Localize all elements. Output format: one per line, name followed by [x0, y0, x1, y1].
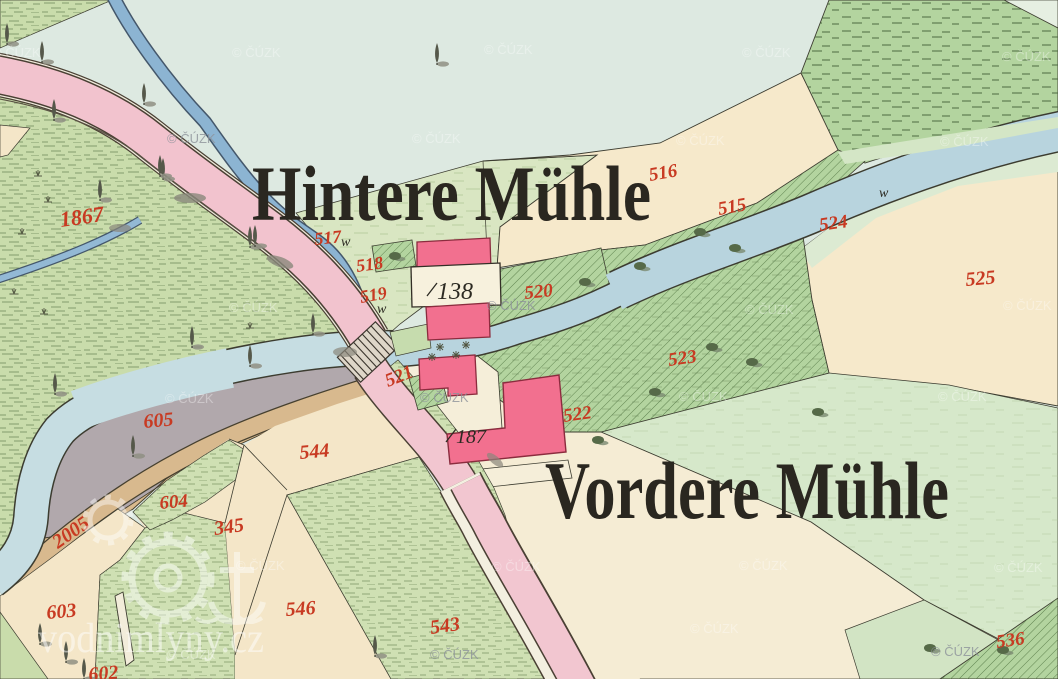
svg-text:© ČÚZK: © ČÚZK: [742, 45, 791, 60]
svg-text:517: 517: [313, 226, 343, 249]
svg-text:525: 525: [965, 266, 997, 291]
svg-text:© ČÚZK: © ČÚZK: [420, 390, 469, 405]
svg-text:© ČÚZK: © ČÚZK: [690, 621, 739, 636]
svg-text:138: 138: [437, 279, 473, 305]
svg-text:© ČÚZK: © ČÚZK: [739, 558, 788, 573]
svg-text:345: 345: [212, 514, 246, 540]
svg-text:518: 518: [355, 252, 385, 276]
svg-text:© ČÚZK: © ČÚZK: [229, 300, 278, 315]
svg-text:© ČÚZK: © ČÚZK: [676, 133, 725, 148]
svg-text:546: 546: [285, 597, 316, 621]
svg-text:© ČÚZK: © ČÚZK: [430, 647, 479, 662]
svg-text:© ČÚZK: © ČÚZK: [412, 131, 461, 146]
svg-text:543: 543: [429, 613, 462, 639]
svg-text:602: 602: [88, 661, 120, 679]
svg-text:© ČÚZK: © ČÚZK: [487, 298, 536, 313]
svg-text:© ČÚZK: © ČÚZK: [745, 302, 794, 317]
svg-text:© ČÚZK: © ČÚZK: [1003, 298, 1052, 313]
svg-text:© ČÚZK: © ČÚZK: [931, 644, 980, 659]
svg-text:536: 536: [995, 628, 1027, 653]
svg-text:© ČÚZK: © ČÚZK: [232, 45, 281, 60]
svg-text:604: 604: [159, 491, 189, 514]
svg-text:522: 522: [562, 402, 594, 427]
svg-text:© ČÚZK: © ČÚZK: [0, 45, 41, 60]
svg-text:523: 523: [667, 346, 698, 371]
svg-text:© ČÚZK: © ČÚZK: [484, 42, 533, 57]
svg-text:© ČÚZK: © ČÚZK: [994, 560, 1043, 575]
svg-text:605: 605: [143, 408, 175, 433]
svg-text:524: 524: [818, 211, 849, 236]
svg-text:w: w: [377, 302, 387, 317]
svg-text:w: w: [341, 235, 351, 250]
svg-text:Vordere Mühle: Vordere Mühle: [545, 445, 949, 536]
svg-text:© ČÚZK: © ČÚZK: [167, 131, 216, 146]
svg-text:© ČÚZK: © ČÚZK: [165, 391, 214, 406]
svg-text:Hintere Mühle: Hintere Mühle: [252, 150, 651, 237]
svg-text:544: 544: [299, 439, 331, 464]
svg-text:187: 187: [456, 426, 487, 448]
svg-text:© ČÚZK: © ČÚZK: [679, 389, 728, 404]
svg-text:© ČÚZK: © ČÚZK: [492, 559, 541, 574]
svg-text:© ČÚZK: © ČÚZK: [1002, 49, 1051, 64]
svg-text:© ČÚZK: © ČÚZK: [938, 389, 987, 404]
svg-text:© ČÚZK: © ČÚZK: [940, 134, 989, 149]
svg-text:w: w: [879, 186, 889, 201]
svg-text:vodnimlyny.cz: vodnimlyny.cz: [38, 616, 264, 662]
